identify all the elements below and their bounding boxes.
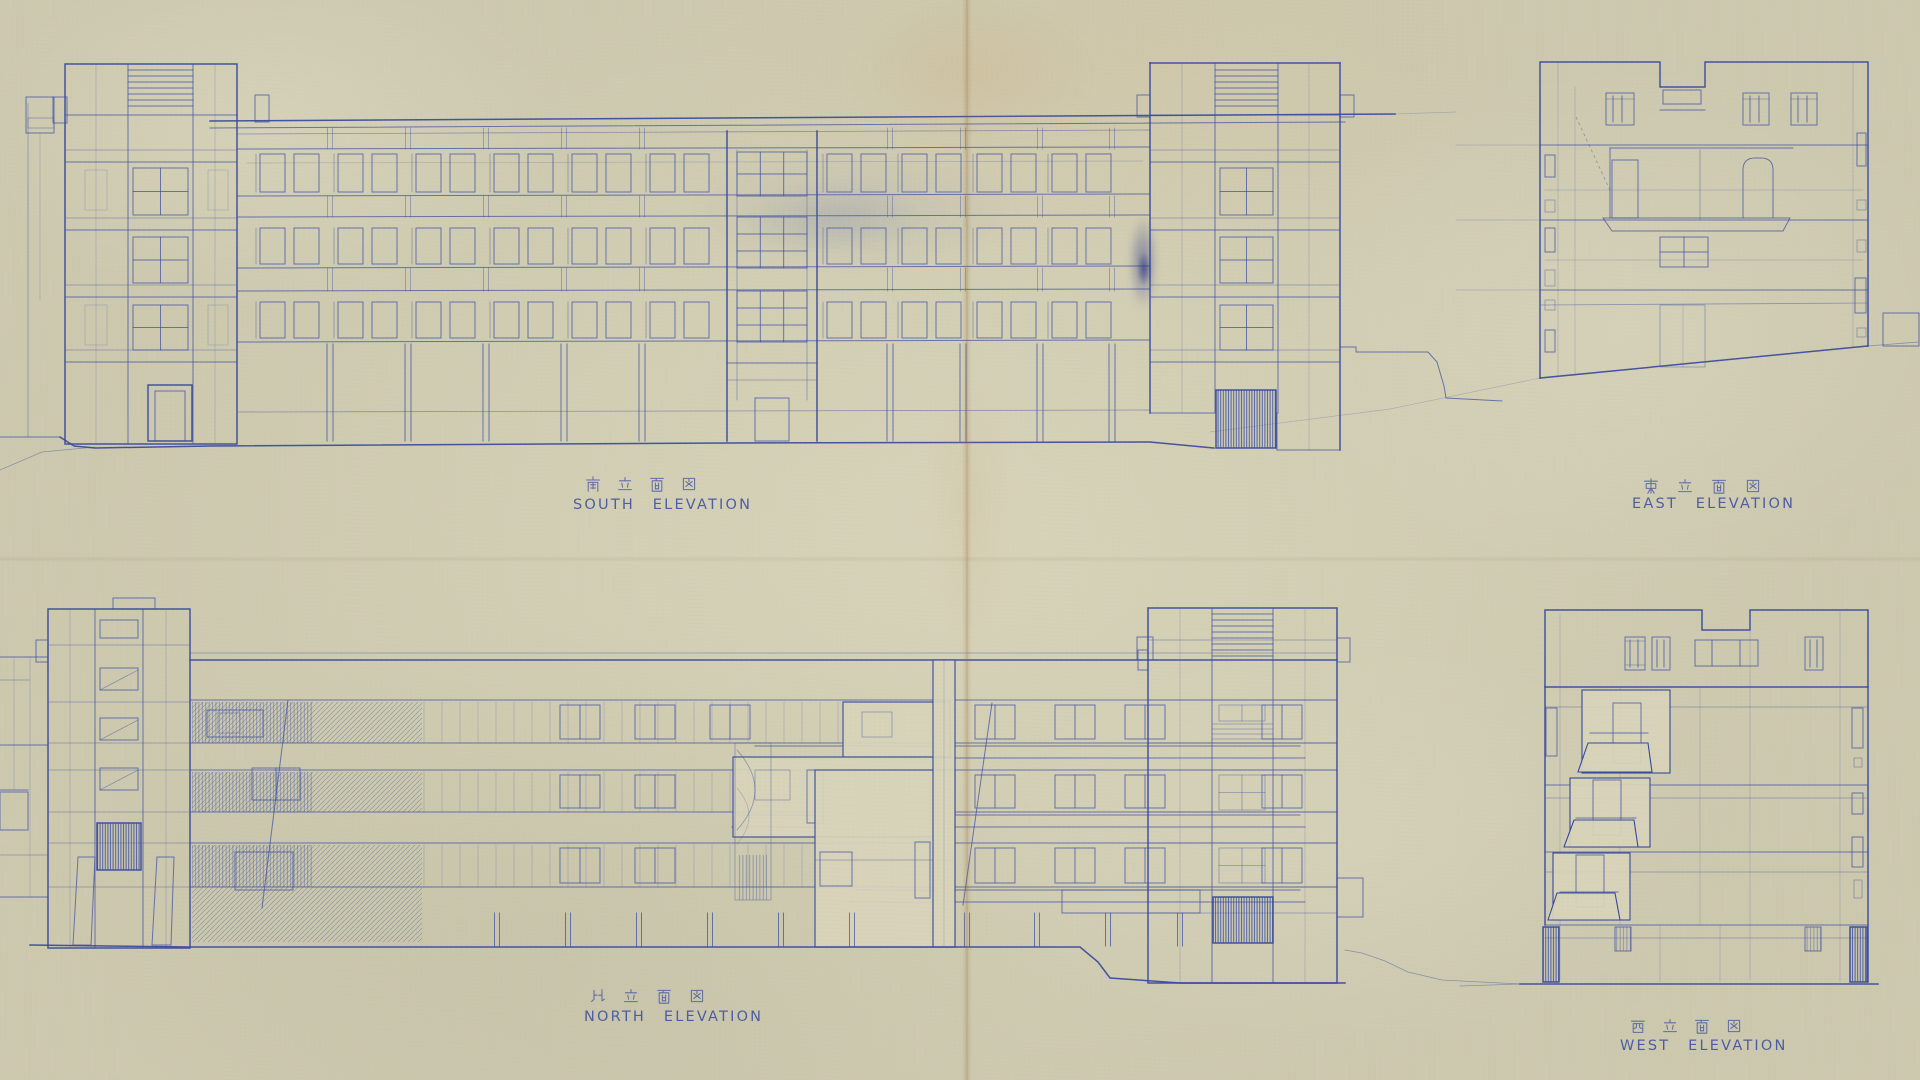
window [416,154,441,192]
window [861,154,886,192]
kanji-stroke [592,990,594,1001]
window [1052,228,1077,264]
ink-rect [1337,638,1350,662]
ink-rect [1606,93,1634,125]
window [572,154,597,192]
window [1011,154,1036,192]
ink-path [1743,158,1773,218]
ink-rect [1695,640,1758,666]
window [372,228,397,264]
hatch-area [1850,927,1867,982]
ink-rect [1652,637,1670,670]
window [606,154,631,192]
window [977,154,1002,192]
balcony-planter [1548,893,1620,920]
window [827,228,852,264]
kanji-図 [691,990,702,1001]
ink-rect [1791,93,1817,125]
ink-line [1868,342,1918,346]
ink-polyline [73,857,95,945]
window [338,228,363,264]
hatch-area [1213,897,1273,943]
west-elevation-label-en: WEST ELEVATION [1620,1038,1788,1054]
north-elevation-label-jp [592,990,703,1004]
kanji-stroke [1672,1025,1673,1029]
ink-rect [100,620,138,638]
ink-line [100,670,138,690]
kanji-北 [592,990,605,1002]
window [936,302,961,338]
ink-rect [1545,200,1555,212]
ink-rect [1545,155,1555,177]
ink-rect [1857,240,1866,252]
window [902,302,927,338]
hatch-area [1543,927,1559,982]
ink-rect [1854,758,1862,767]
window [1086,228,1111,264]
kanji-stroke [627,483,628,487]
kanji-東 [1645,479,1658,493]
ink-rect [36,640,48,662]
ink-polyline [60,437,1214,448]
window [494,302,519,338]
kanji-stroke [1652,489,1654,493]
window [606,302,631,338]
east-elevation-drawing [1210,62,1919,432]
ink-line [1540,346,1868,378]
window [450,154,475,192]
window [650,228,675,264]
window [1011,302,1036,338]
window [372,302,397,338]
window [294,154,319,192]
window [684,228,709,264]
window [338,302,363,338]
kanji-面 [658,990,671,1003]
kanji-面 [1696,1020,1709,1033]
ink-rect [1857,200,1866,210]
ink-rect [1545,330,1555,352]
window [902,154,927,192]
kanji-stroke [1687,485,1688,489]
west-elevation-label-jp [1632,1020,1740,1034]
hatch-area [1216,390,1276,448]
ink-line [963,703,992,905]
ink-rect [1857,133,1866,166]
kanji-立 [1664,1020,1677,1032]
ink-line [1460,984,1520,986]
kanji-立 [1679,480,1692,492]
window-grid [737,291,807,342]
kanji-南 [587,477,600,491]
ink-line [247,161,1143,163]
balcony-planter [1564,820,1638,847]
hatch-area [192,845,312,887]
window [572,302,597,338]
window [1086,154,1111,192]
ink-line [100,720,138,740]
window [450,228,475,264]
window [606,228,631,264]
kanji-stroke [1682,485,1683,489]
kanji-図 [1747,480,1758,491]
ink-rect [208,305,228,345]
ink-rect [0,792,28,830]
window [936,154,961,192]
window-grid [737,217,807,268]
window [494,228,519,264]
kanji-stroke [622,483,623,487]
hatch-area [192,887,422,942]
window [861,228,886,264]
window [827,302,852,338]
window [294,302,319,338]
kanji-面 [651,478,664,491]
kanji-面 [1713,480,1726,493]
ink-polyline [152,857,174,945]
ink-polyline [1340,347,1502,401]
window [450,302,475,338]
ink-line [237,266,1150,268]
ink-polyline [1345,950,1520,984]
kanji-立 [619,478,632,490]
window [528,154,553,192]
ink-rect [1852,708,1863,748]
kanji-stroke [1640,1024,1642,1029]
ink-rect [26,97,54,133]
window [1052,302,1077,338]
window [372,154,397,192]
window [650,154,675,192]
balcony-planter [1578,743,1652,772]
east-elevation-label-jp [1645,479,1759,493]
west-elevation-drawing [1460,610,1878,986]
window [977,302,1002,338]
ink-rect [1854,880,1862,898]
ink-rect [28,118,54,128]
ink-line [237,215,1150,217]
window [977,228,1002,264]
window [827,154,852,192]
ink-polyline [0,447,95,470]
window [294,228,319,264]
window [528,302,553,338]
ink-rect [1743,93,1769,125]
hatch-area [1805,927,1821,951]
ink-line [237,147,1150,149]
window [1086,302,1111,338]
kanji-図 [1728,1020,1739,1031]
ink-rect [48,609,190,948]
ink-rect [1663,90,1701,104]
kanji-stroke [1634,1024,1636,1029]
window [684,302,709,338]
ink-rect [1852,793,1863,814]
ink-line [210,122,1345,128]
ink-line [237,410,1150,412]
window [260,154,285,192]
hatch-area [1615,927,1631,951]
kanji-stroke [1667,1025,1668,1029]
ink-rect [1855,278,1866,313]
ink-line [237,340,1150,342]
ink-rect [1545,228,1555,252]
window [684,154,709,192]
window [1011,228,1036,264]
window [936,228,961,264]
ink-line [237,130,1150,134]
ink-line [237,289,1150,291]
construction-guide-lines [1395,112,1540,290]
window [416,302,441,338]
window [650,302,675,338]
south-elevation-drawing [0,63,1502,470]
kanji-stroke [633,995,634,999]
east-elevation-label-en: EAST ELEVATION [1632,496,1795,512]
ink-rect [1660,305,1705,367]
ink-rect [1337,878,1363,917]
ink-line [1395,112,1456,114]
ink-rect [208,170,228,210]
south-elevation-label-jp [587,477,695,491]
ink-line [237,194,1150,196]
window [416,228,441,264]
kanji-stroke [1648,489,1650,493]
window [1052,154,1077,192]
window [902,228,927,264]
blueprint-page: { "page": { "paper_color": "#d7d3b9", "i… [0,0,1920,1080]
ink-rect [1546,708,1557,756]
window [861,302,886,338]
kanji-立 [625,990,638,1002]
ink-rect [113,598,155,609]
ink-rect [1883,313,1919,346]
ink-rect [755,398,789,441]
ink-rect [1545,270,1555,286]
window [528,228,553,264]
ink-rect [1137,637,1153,660]
window [260,302,285,338]
window [338,154,363,192]
south-elevation-label-en: SOUTH ELEVATION [573,497,752,513]
ink-rect [1857,328,1866,337]
ink-rect [1805,637,1823,670]
window [494,154,519,192]
north-elevation-drawing [0,598,1520,984]
kanji-図 [683,478,694,489]
ink-rect [1137,95,1150,117]
hatch-area [737,855,767,900]
window [260,228,285,264]
kanji-西 [1632,1021,1645,1032]
paper-sheet: SOUTH ELEVATION EAST ELEVATION NORTH ELE… [0,0,1920,1080]
north-elevation-label-en: NORTH ELEVATION [584,1009,763,1025]
ink-rect [1612,160,1638,218]
ink-line [1576,117,1610,190]
window [572,228,597,264]
ink-line [100,770,138,790]
ink-rect [255,95,269,122]
hatch-area [97,823,141,870]
ink-rect [155,391,185,441]
elevation-drawing-canvas: SOUTH ELEVATION EAST ELEVATION NORTH ELE… [0,0,1920,1080]
kanji-stroke [628,995,629,999]
